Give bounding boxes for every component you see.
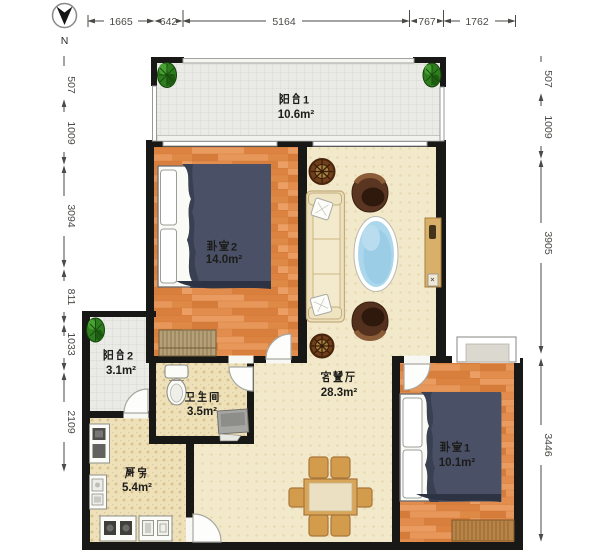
svg-text:507: 507 (542, 70, 554, 88)
svg-text:3094: 3094 (65, 204, 77, 228)
svg-text:1: 1 (303, 95, 309, 107)
svg-text:2: 2 (231, 242, 237, 254)
svg-text:N: N (61, 35, 69, 47)
svg-text:14.0m²: 14.0m² (206, 254, 243, 266)
svg-text:3.1m²: 3.1m² (106, 365, 136, 377)
svg-text:767: 767 (418, 16, 436, 28)
svg-text:811: 811 (65, 289, 77, 306)
svg-text:1033: 1033 (65, 332, 77, 356)
svg-text:1: 1 (464, 443, 470, 455)
svg-text:2109: 2109 (65, 410, 77, 434)
svg-text:10.6m²: 10.6m² (278, 109, 315, 121)
svg-text:5.4m²: 5.4m² (122, 482, 152, 494)
svg-text:5164: 5164 (272, 16, 296, 28)
svg-text:28.3m²: 28.3m² (321, 387, 358, 399)
svg-text:642: 642 (160, 16, 178, 28)
svg-text:1762: 1762 (465, 16, 489, 28)
svg-text:3.5m²: 3.5m² (187, 406, 217, 418)
svg-text:3905: 3905 (542, 231, 554, 255)
svg-text:2: 2 (127, 351, 133, 363)
svg-text:10.1m²: 10.1m² (439, 457, 476, 469)
svg-text:507: 507 (65, 76, 77, 94)
svg-text:1665: 1665 (109, 16, 133, 28)
svg-text:1009: 1009 (542, 115, 554, 139)
svg-text:1009: 1009 (65, 121, 77, 145)
svg-text:3446: 3446 (542, 433, 554, 457)
